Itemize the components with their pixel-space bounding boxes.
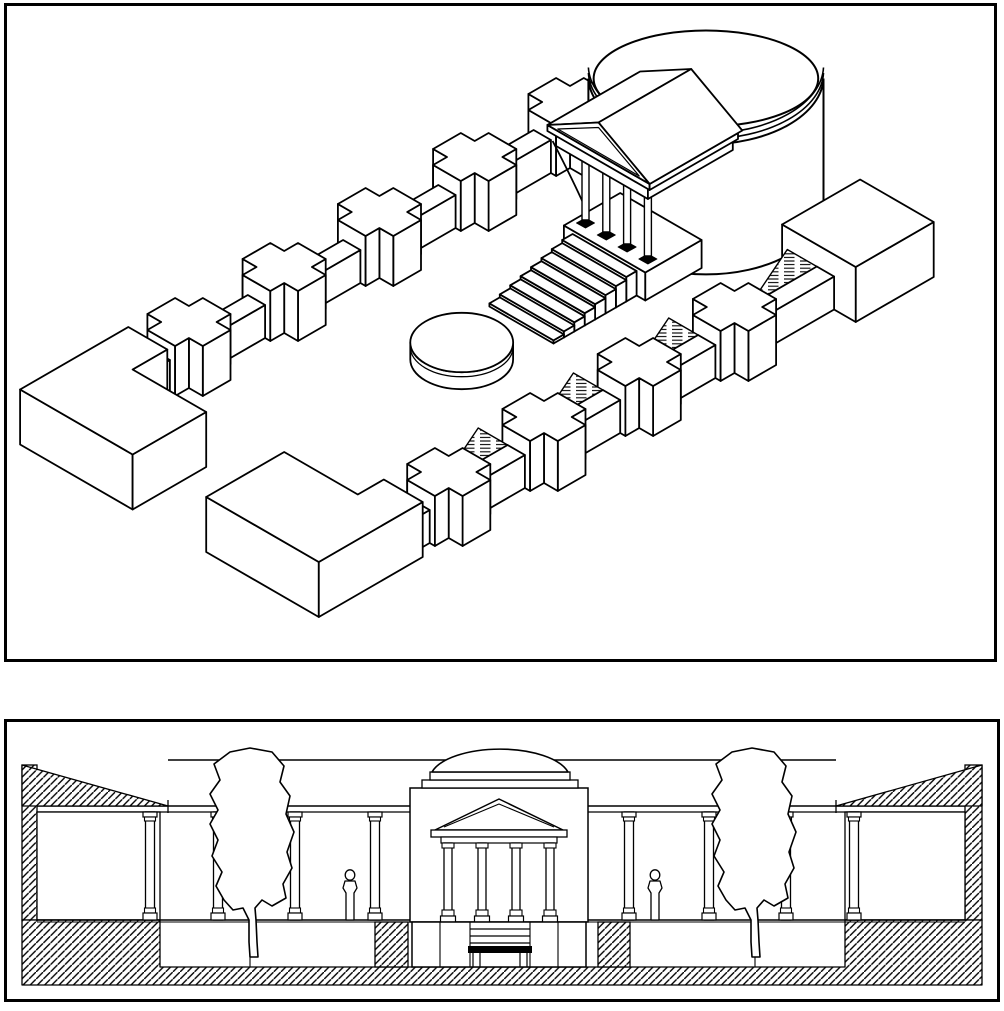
section-drawing	[7, 722, 997, 999]
section-panel	[4, 719, 1000, 1002]
axonometric-panel	[4, 3, 997, 662]
architectural-plate	[0, 0, 1004, 1011]
axonometric-drawing	[7, 6, 994, 659]
